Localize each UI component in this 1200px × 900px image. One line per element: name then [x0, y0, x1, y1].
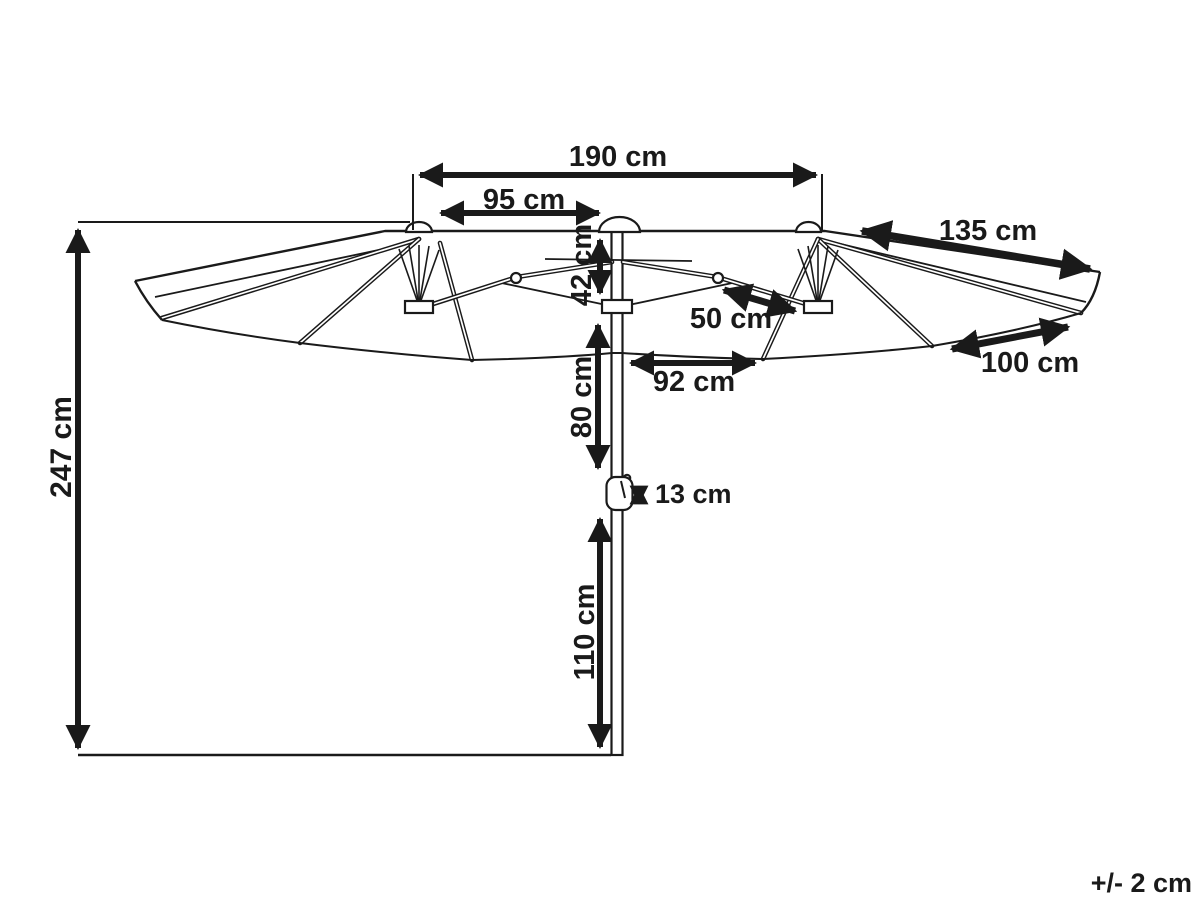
- left-cap: [406, 222, 432, 232]
- dim-crank: 13 cm: [639, 479, 732, 509]
- dim-total-height: 247 cm: [45, 230, 78, 748]
- dim-pole-lower-label: 110 cm: [569, 584, 601, 681]
- dim-canopy-drop: 42 cm: [566, 224, 600, 306]
- dim-outer-edge-right-label: 100 cm: [981, 347, 1079, 379]
- left-hub: [405, 301, 433, 313]
- center-cap: [599, 217, 640, 232]
- dim-half-width-label: 95 cm: [483, 184, 565, 216]
- right-hub: [804, 301, 832, 313]
- dim-under-canopy-width-label: 92 cm: [653, 366, 735, 398]
- dim-canopy-edge-right-label: 135 cm: [939, 215, 1037, 247]
- dim-strut-label: 50 cm: [690, 303, 772, 335]
- dim-pole-upper-label: 80 cm: [566, 356, 598, 438]
- dim-total-width-label: 190 cm: [569, 141, 667, 173]
- tolerance-note: +/- 2 cm: [1091, 868, 1192, 898]
- dim-canopy-drop-label: 42 cm: [566, 224, 598, 306]
- right-cap: [796, 222, 821, 232]
- right-joint-ring: [713, 273, 723, 283]
- dim-half-width: 95 cm: [441, 184, 599, 216]
- dim-total-height-label: 247 cm: [45, 396, 78, 498]
- dim-total-width: 190 cm: [420, 141, 816, 175]
- dim-crank-label: 13 cm: [655, 479, 732, 509]
- dim-pole-lower: 110 cm: [569, 519, 601, 747]
- left-joint-ring: [511, 273, 521, 283]
- crank-handle: [607, 475, 633, 510]
- center-hub: [602, 300, 632, 313]
- diagram-page: 190 cm 95 cm 42 cm 135 cm 50 cm 100 cm: [0, 0, 1200, 900]
- diagram-canvas: 190 cm 95 cm 42 cm 135 cm 50 cm 100 cm: [0, 0, 1200, 900]
- dim-under-canopy-width: 92 cm: [631, 363, 755, 398]
